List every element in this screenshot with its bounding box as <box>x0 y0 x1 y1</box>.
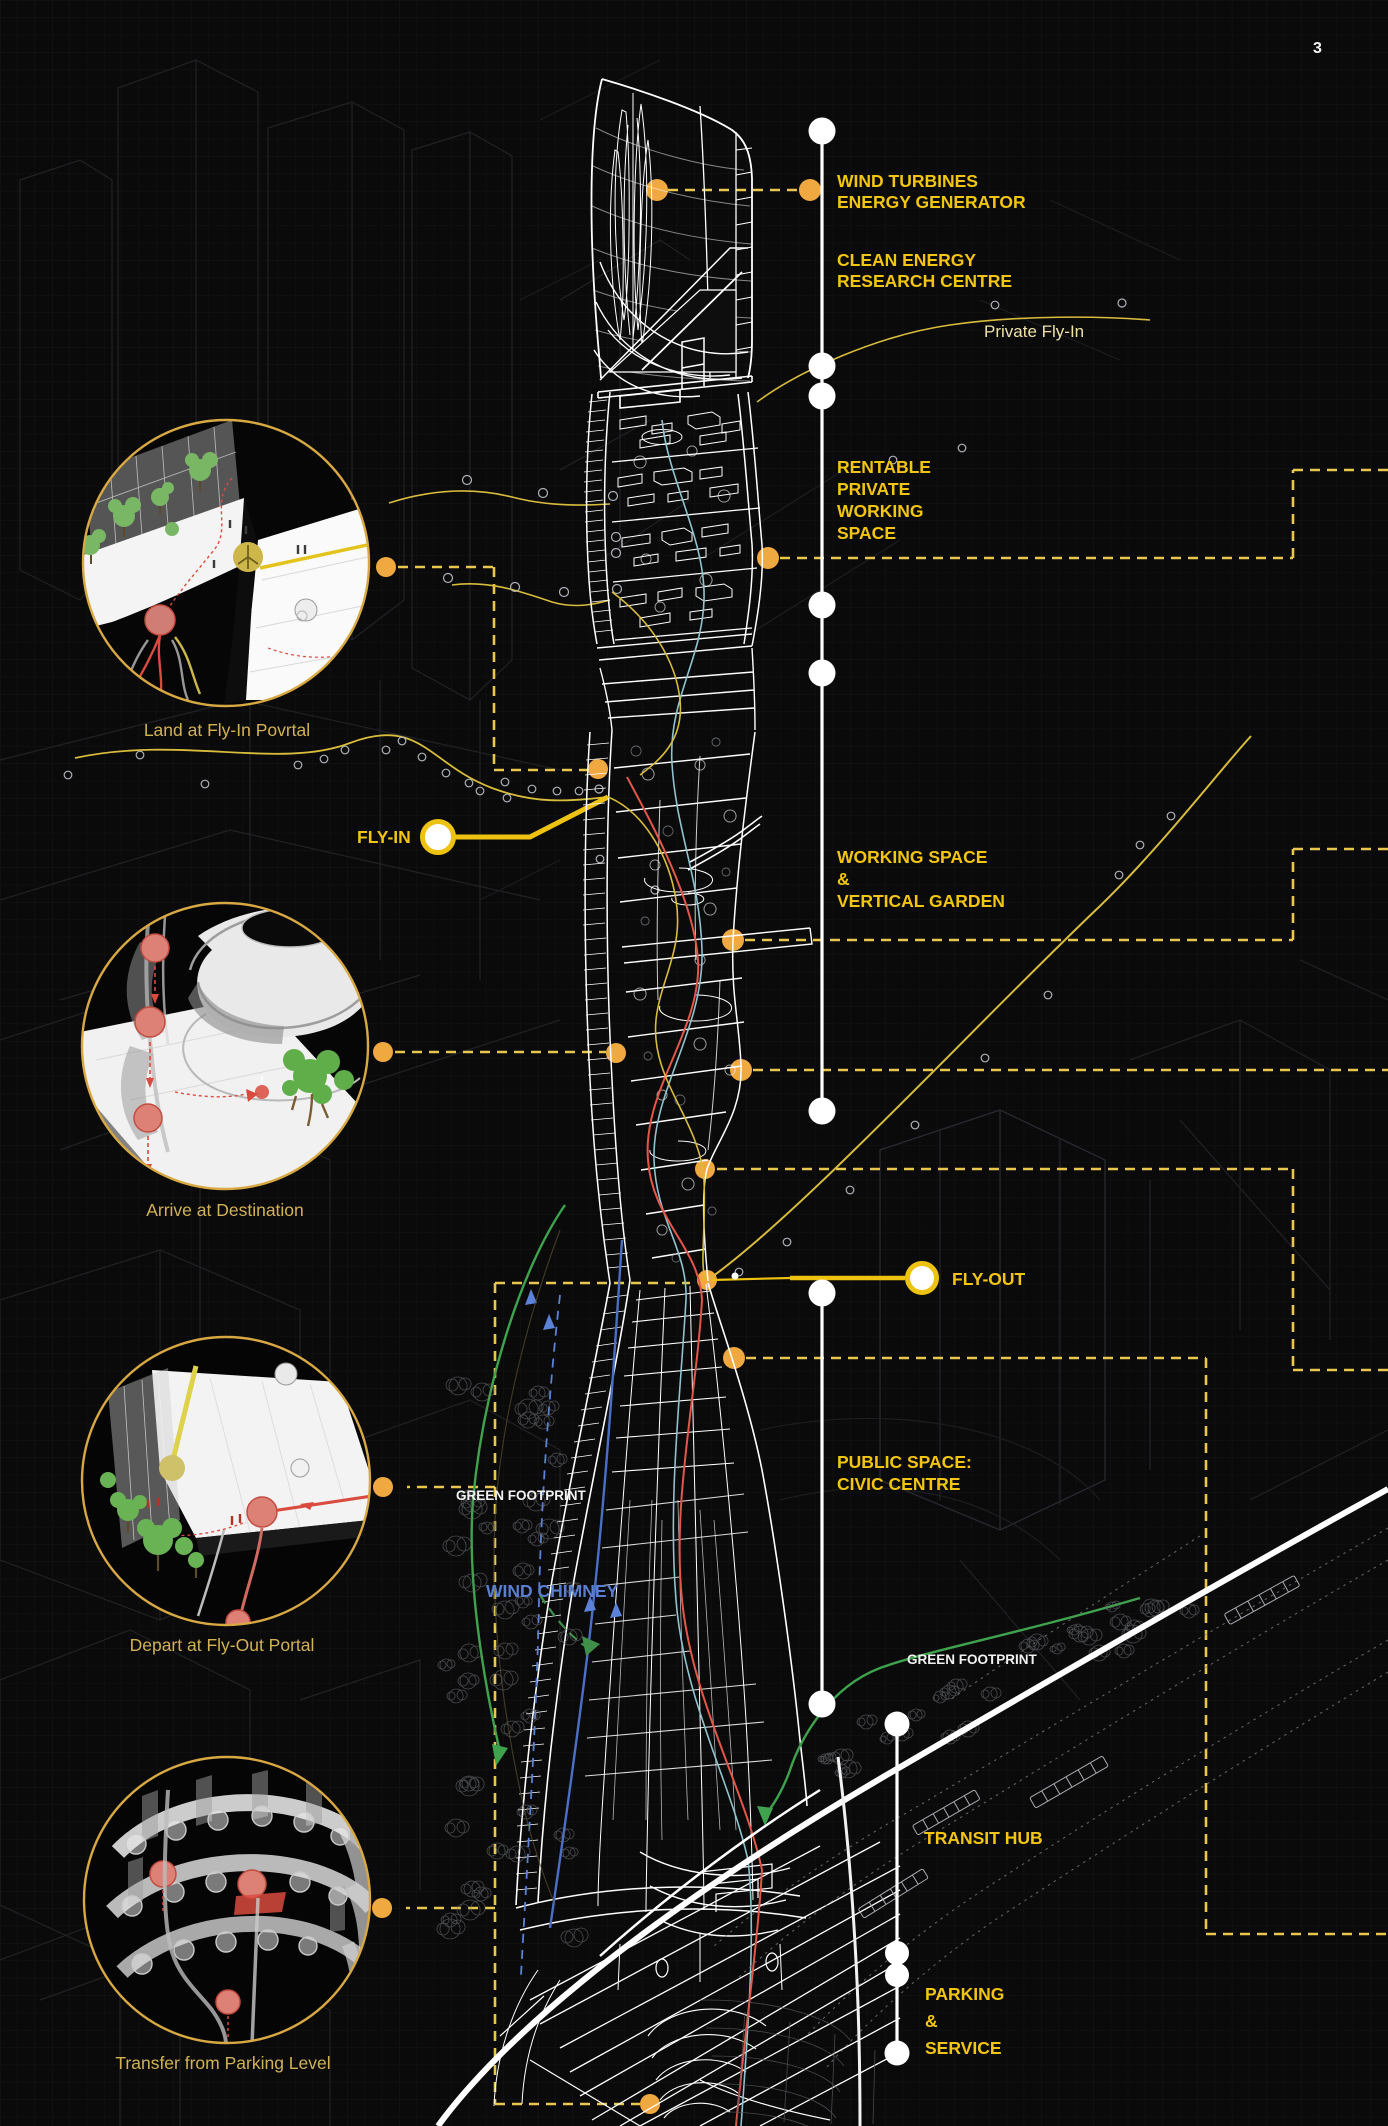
svg-text:RENTABLE: RENTABLE <box>837 457 931 477</box>
svg-text:Arrive at Destination: Arrive at Destination <box>146 1200 304 1220</box>
svg-text:Depart at Fly-Out Portal: Depart at Fly-Out Portal <box>130 1635 315 1655</box>
svg-text:&: & <box>925 2011 938 2031</box>
svg-text:PARKING: PARKING <box>925 1984 1004 2004</box>
svg-text:RESEARCH CENTRE: RESEARCH CENTRE <box>837 271 1012 291</box>
svg-text:CLEAN ENERGY: CLEAN ENERGY <box>837 250 976 270</box>
svg-text:WIND TURBINES: WIND TURBINES <box>837 171 978 191</box>
svg-text:Transfer from Parking Level: Transfer from Parking Level <box>115 2053 330 2073</box>
svg-text:VERTICAL GARDEN: VERTICAL GARDEN <box>837 891 1005 911</box>
svg-text:ENERGY GENERATOR: ENERGY GENERATOR <box>837 192 1026 212</box>
svg-text:GREEN FOOTPRINT: GREEN FOOTPRINT <box>907 1652 1038 1667</box>
svg-text:TRANSIT HUB: TRANSIT HUB <box>924 1828 1043 1848</box>
svg-text:WORKING: WORKING <box>837 501 924 521</box>
svg-text:Private Fly-In: Private Fly-In <box>984 322 1084 341</box>
svg-text:PUBLIC SPACE:: PUBLIC SPACE: <box>837 1452 972 1472</box>
svg-text:SERVICE: SERVICE <box>925 2038 1002 2058</box>
svg-text:GREEN FOOTPRINT: GREEN FOOTPRINT <box>456 1488 587 1503</box>
svg-text:PRIVATE: PRIVATE <box>837 479 910 499</box>
svg-text:CIVIC CENTRE: CIVIC CENTRE <box>837 1474 960 1494</box>
svg-text:&: & <box>837 869 850 889</box>
svg-text:WORKING SPACE: WORKING SPACE <box>837 847 987 867</box>
svg-text:FLY-IN: FLY-IN <box>357 827 411 847</box>
svg-text:WIND CHIMNEY: WIND CHIMNEY <box>486 1581 619 1601</box>
svg-text:3: 3 <box>1313 40 1322 57</box>
svg-text:Land at Fly-In Povrtal: Land at Fly-In Povrtal <box>144 720 310 740</box>
svg-text:SPACE: SPACE <box>837 523 896 543</box>
svg-text:FLY-OUT: FLY-OUT <box>952 1269 1026 1289</box>
